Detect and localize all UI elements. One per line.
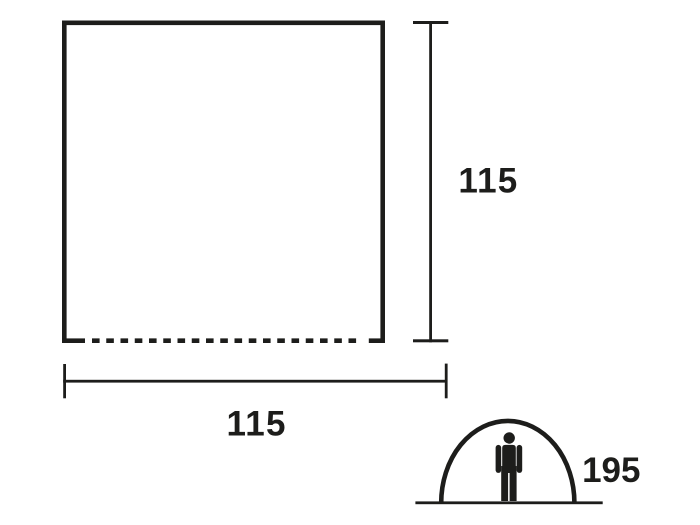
svg-text:115: 115 xyxy=(227,405,287,444)
svg-text:115: 115 xyxy=(458,162,518,201)
svg-text:195: 195 xyxy=(582,451,640,490)
